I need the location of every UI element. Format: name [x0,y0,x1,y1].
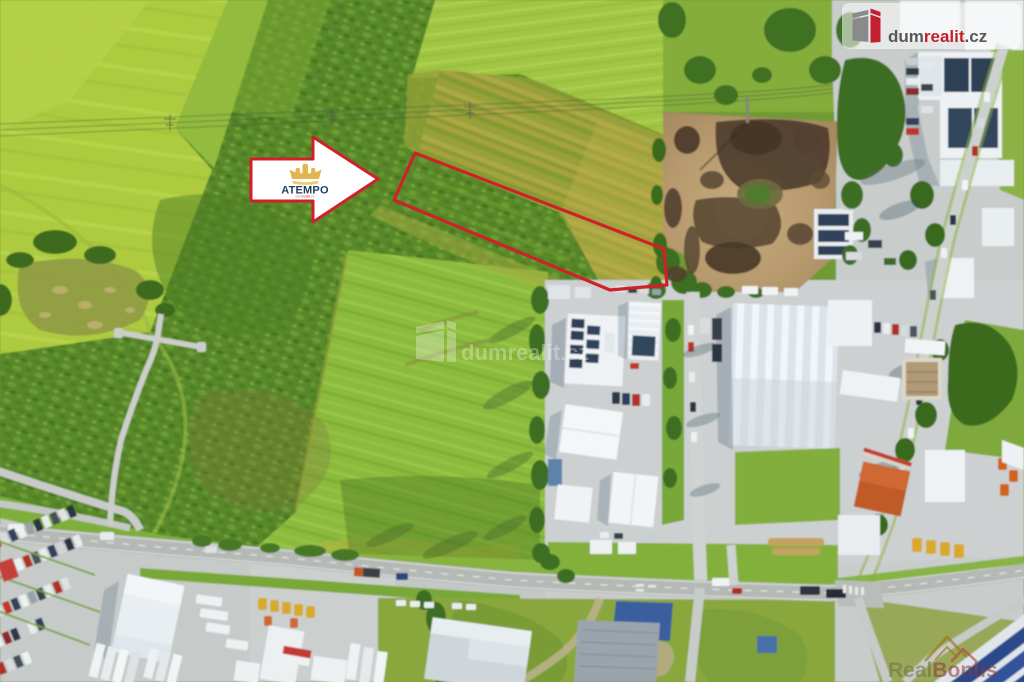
svg-text:dumrealit.cz: dumrealit.cz [461,340,589,365]
svg-text:dumrealit.cz: dumrealit.cz [888,27,987,46]
svg-text:dumrealit.cz: dumrealit.cz [296,195,315,199]
svg-text:RealBonus: RealBonus [888,659,998,682]
